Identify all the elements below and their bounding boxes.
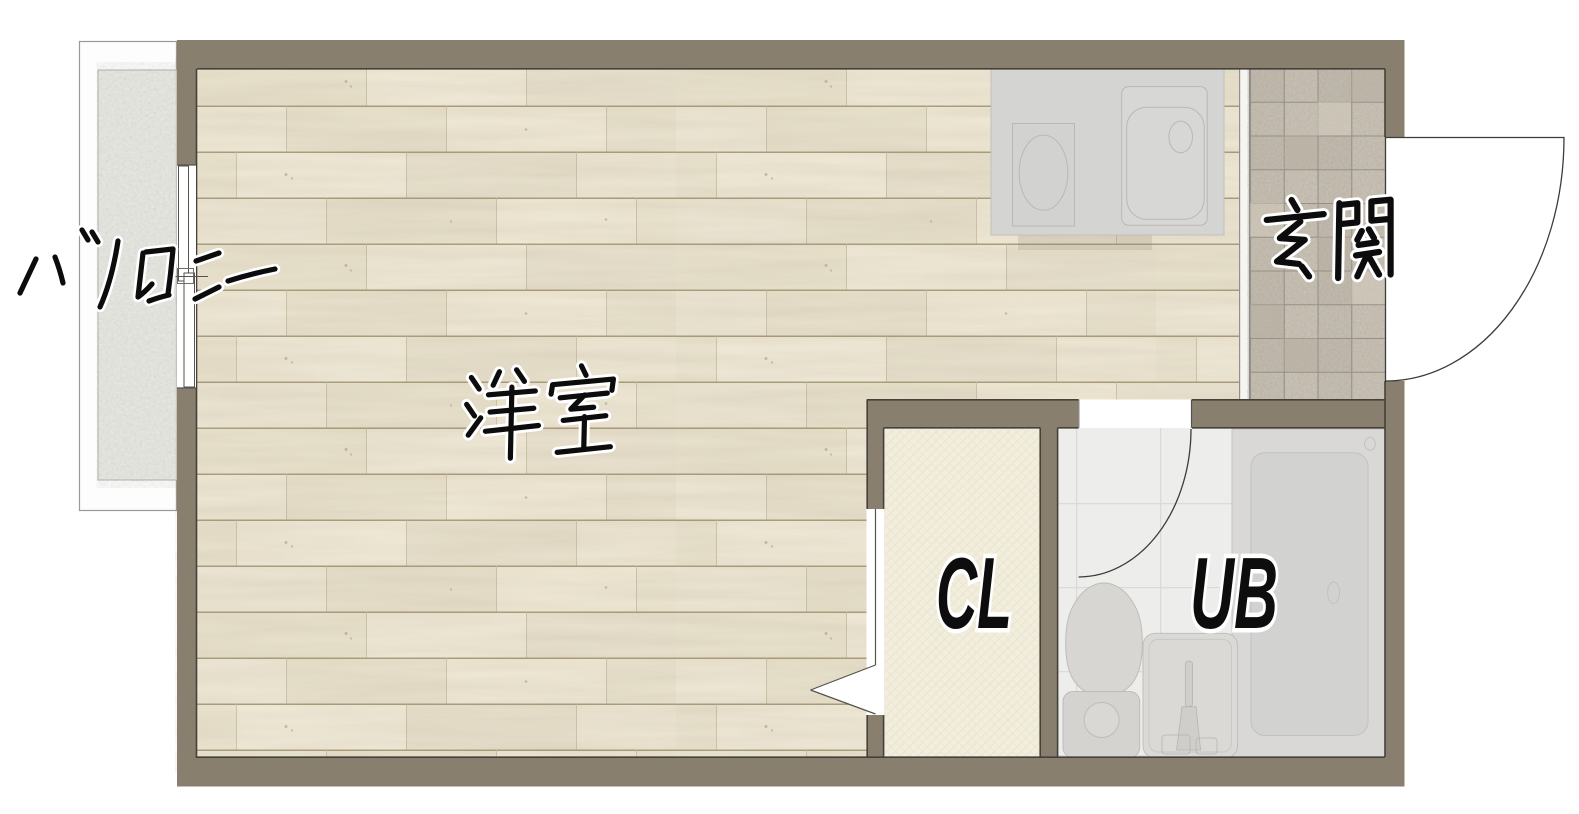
svg-text:CL: CL <box>936 538 1012 650</box>
svg-text:UB: UB <box>1190 538 1278 650</box>
